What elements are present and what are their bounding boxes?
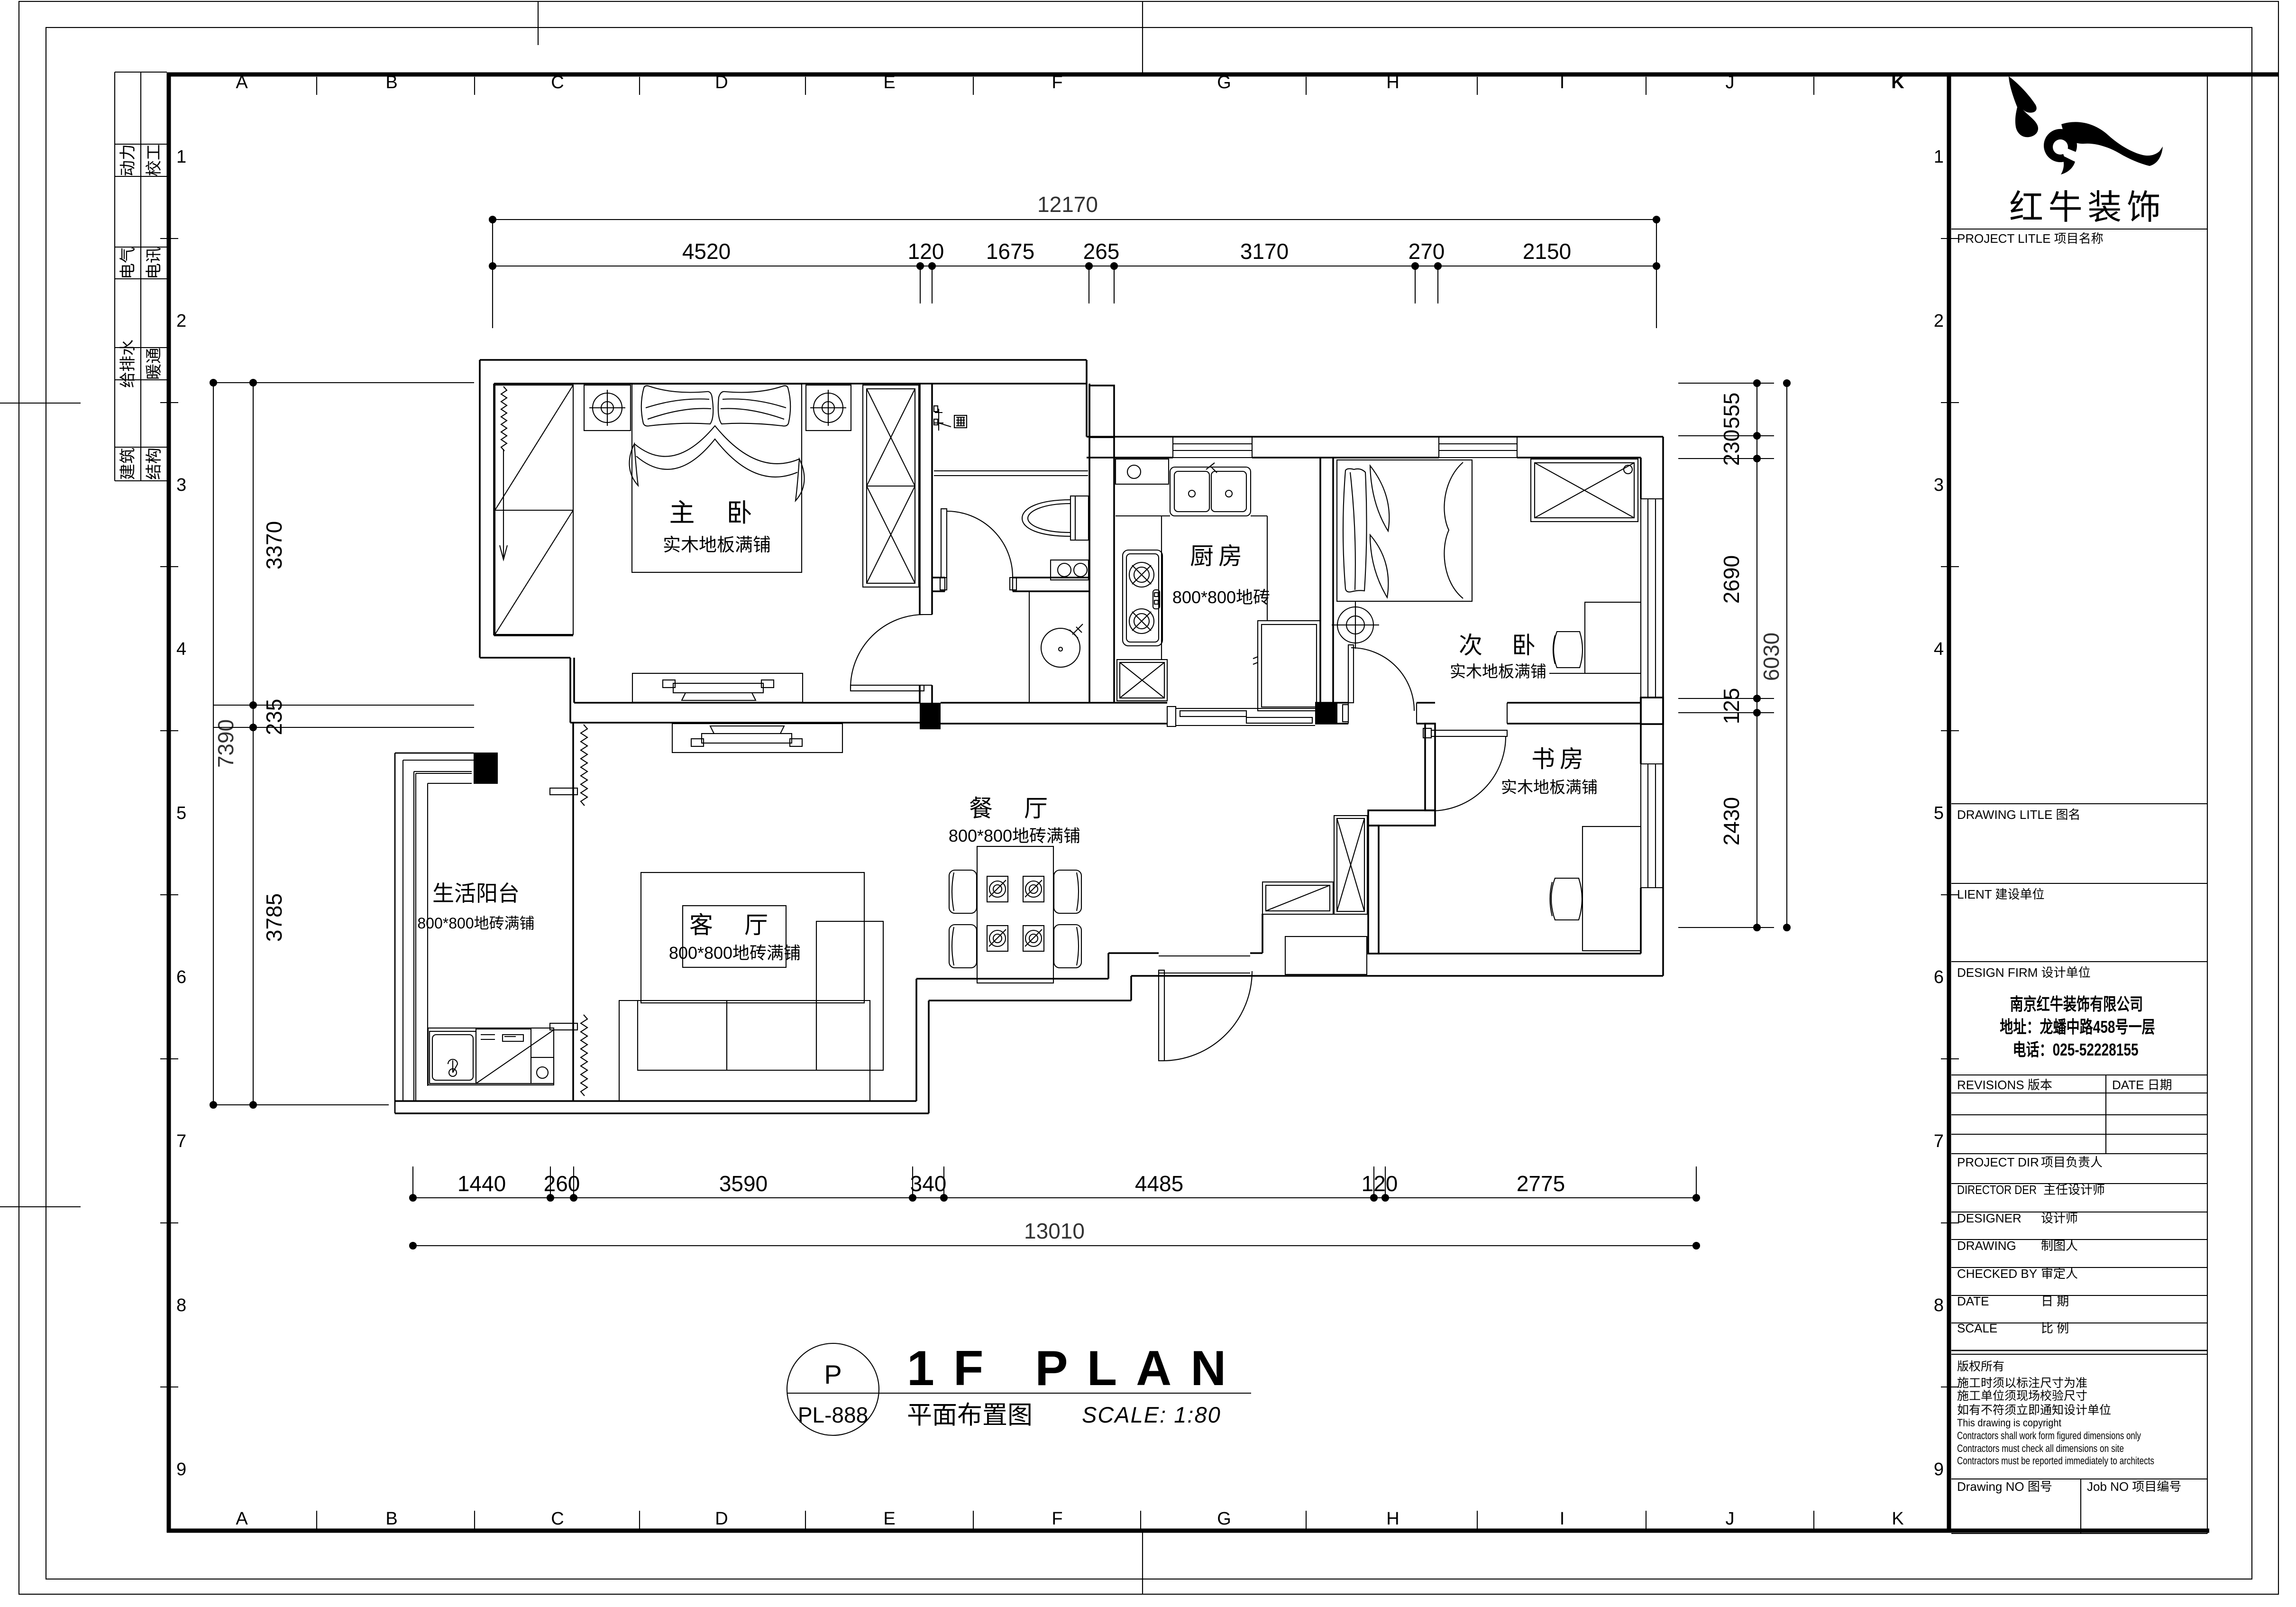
svg-text:C: C (551, 1509, 564, 1529)
svg-text:电讯: 电讯 (145, 247, 163, 279)
svg-text:F: F (1052, 1509, 1062, 1529)
svg-text:1675: 1675 (986, 239, 1034, 264)
svg-text:主 卧: 主 卧 (669, 499, 764, 527)
svg-text:P: P (824, 1359, 842, 1389)
svg-text:H: H (1386, 73, 1399, 92)
svg-text:J: J (1726, 1509, 1735, 1529)
svg-text:厨房: 厨房 (1190, 543, 1247, 569)
svg-text:2775: 2775 (1517, 1171, 1565, 1196)
svg-text:5: 5 (176, 803, 186, 823)
svg-text:7: 7 (176, 1131, 186, 1151)
svg-text:设计师: 设计师 (2041, 1211, 2078, 1225)
svg-text:2690: 2690 (1719, 555, 1744, 604)
svg-text:LIENT 建设单位: LIENT 建设单位 (1957, 887, 2044, 901)
svg-text:B: B (385, 1509, 397, 1529)
svg-text:9: 9 (176, 1460, 186, 1479)
svg-text:G: G (1217, 73, 1231, 92)
svg-text:电气: 电气 (119, 247, 137, 279)
svg-text:This drawing is copyright: This drawing is copyright (1957, 1417, 2061, 1429)
svg-text:如有不符须立即通知设计单位: 如有不符须立即通知设计单位 (1957, 1404, 2111, 1417)
svg-text:3: 3 (176, 475, 186, 495)
svg-text:7390: 7390 (213, 719, 238, 768)
svg-text:800*800地砖满铺: 800*800地砖满铺 (949, 826, 1080, 845)
svg-text:1: 1 (1934, 147, 1944, 167)
svg-text:6: 6 (176, 967, 186, 987)
svg-text:800*800地砖: 800*800地砖 (1172, 588, 1270, 607)
svg-text:7: 7 (1934, 1131, 1944, 1151)
svg-text:3170: 3170 (1240, 239, 1289, 264)
svg-text:4: 4 (176, 639, 186, 659)
svg-text:电话：025-52228155: 电话：025-52228155 (2012, 1040, 2138, 1059)
svg-text:审定人: 审定人 (2041, 1267, 2078, 1281)
svg-text:DATE: DATE (1957, 1294, 1989, 1308)
svg-text:PL-888: PL-888 (798, 1403, 868, 1427)
svg-text:I: I (1560, 1509, 1565, 1529)
svg-text:南京红牛装饰有限公司: 南京红牛装饰有限公司 (2010, 995, 2143, 1014)
svg-text:1440: 1440 (457, 1171, 506, 1196)
svg-text:1F PLAN: 1F PLAN (907, 1341, 1245, 1396)
svg-text:SCALE: 1:80: SCALE: 1:80 (1082, 1402, 1221, 1427)
svg-text:6: 6 (1934, 967, 1944, 987)
svg-text:235: 235 (262, 699, 286, 735)
svg-text:800*800地砖满铺: 800*800地砖满铺 (417, 915, 534, 932)
svg-text:5: 5 (1934, 803, 1944, 823)
svg-text:生活阳台: 生活阳台 (432, 881, 520, 906)
svg-text:260: 260 (544, 1171, 580, 1196)
svg-text:230: 230 (1719, 430, 1744, 466)
svg-text:主任设计师: 主任设计师 (2043, 1183, 2105, 1197)
svg-text:Drawing NO 图号: Drawing NO 图号 (1957, 1479, 2052, 1494)
svg-text:H: H (1386, 1509, 1399, 1529)
svg-text:SCALE: SCALE (1957, 1321, 1997, 1335)
svg-text:日 期: 日 期 (2041, 1294, 2069, 1308)
svg-text:CHECKED BY: CHECKED BY (1957, 1267, 2037, 1281)
svg-text:Contractors shall work form fi: Contractors shall work form figured dime… (1957, 1430, 2141, 1442)
svg-text:J: J (1726, 73, 1735, 92)
svg-text:DESIGNER: DESIGNER (1957, 1211, 2022, 1225)
svg-text:DRAWING: DRAWING (1957, 1239, 2016, 1253)
svg-text:实木地板满铺: 实木地板满铺 (1501, 779, 1598, 797)
svg-text:实木地板满铺: 实木地板满铺 (1450, 663, 1546, 681)
svg-text:B: B (385, 73, 397, 92)
svg-text:施工时须以标注尺寸为准: 施工时须以标注尺寸为准 (1957, 1377, 2087, 1390)
svg-text:Contractors must be reported i: Contractors must be reported immediately… (1957, 1455, 2154, 1467)
svg-text:实木地板满铺: 实木地板满铺 (663, 535, 771, 555)
svg-text:地址：龙蟠中路458号一层: 地址：龙蟠中路458号一层 (2000, 1018, 2155, 1037)
svg-text:餐 厅: 餐 厅 (969, 795, 1060, 822)
svg-text:E: E (883, 73, 895, 92)
svg-text:次 卧: 次 卧 (1459, 632, 1547, 659)
svg-text:Job NO 项目编号: Job NO 项目编号 (2087, 1479, 2181, 1494)
svg-text:3785: 3785 (262, 893, 286, 942)
svg-text:动力: 动力 (119, 144, 137, 176)
svg-text:125: 125 (1719, 688, 1744, 725)
svg-text:PROJECT LITLE 项目名称: PROJECT LITLE 项目名称 (1957, 231, 2104, 246)
svg-text:4520: 4520 (682, 239, 731, 264)
svg-text:REVISIONS 版本: REVISIONS 版本 (1957, 1078, 2052, 1092)
svg-text:A: A (236, 73, 248, 92)
svg-text:1: 1 (176, 147, 186, 167)
svg-text:13010: 13010 (1024, 1219, 1085, 1243)
svg-text:555: 555 (1719, 393, 1744, 429)
svg-text:F: F (1052, 73, 1062, 92)
svg-text:8: 8 (176, 1295, 186, 1315)
svg-text:2430: 2430 (1719, 797, 1744, 845)
svg-text:书房: 书房 (1531, 746, 1588, 772)
svg-text:版权所有: 版权所有 (1957, 1360, 2004, 1373)
svg-text:结构: 结构 (145, 448, 163, 480)
svg-text:3590: 3590 (719, 1171, 768, 1196)
svg-text:2150: 2150 (1523, 239, 1571, 264)
svg-text:DRAWING LITLE 图名: DRAWING LITLE 图名 (1957, 808, 2081, 822)
svg-text:比 例: 比 例 (2041, 1321, 2069, 1335)
svg-text:PROJECT DIR: PROJECT DIR (1957, 1155, 2039, 1169)
svg-text:项目负责人: 项目负责人 (2041, 1155, 2103, 1169)
svg-text:给排水: 给排水 (119, 340, 137, 388)
svg-text:制图人: 制图人 (2041, 1239, 2078, 1253)
svg-text:I: I (1560, 73, 1565, 92)
svg-text:4485: 4485 (1135, 1171, 1183, 1196)
svg-text:C: C (551, 73, 564, 92)
svg-text:施工单位须现场校验尺寸: 施工单位须现场校验尺寸 (1957, 1389, 2087, 1403)
svg-text:265: 265 (1083, 239, 1120, 264)
svg-text:6030: 6030 (1759, 633, 1784, 681)
svg-text:120: 120 (1362, 1171, 1398, 1196)
svg-text:K: K (1892, 1509, 1903, 1529)
svg-text:270: 270 (1409, 239, 1445, 264)
svg-text:DESIGN FIRM 设计单位: DESIGN FIRM 设计单位 (1957, 965, 2091, 980)
svg-text:平面布置图: 平面布置图 (907, 1401, 1033, 1429)
svg-text:120: 120 (908, 239, 944, 264)
svg-text:2: 2 (1934, 311, 1944, 331)
svg-text:G: G (1217, 1509, 1231, 1529)
svg-text:D: D (715, 73, 728, 92)
svg-text:客 厅: 客 厅 (689, 912, 780, 938)
svg-text:800*800地砖满铺: 800*800地砖满铺 (669, 943, 801, 963)
svg-text:2: 2 (176, 311, 186, 331)
svg-text:340: 340 (910, 1171, 947, 1196)
svg-text:9: 9 (1934, 1460, 1944, 1479)
svg-text:8: 8 (1934, 1295, 1944, 1315)
svg-text:D: D (715, 1509, 728, 1529)
svg-text:A: A (236, 1509, 248, 1529)
svg-text:E: E (883, 1509, 895, 1529)
svg-text:建筑: 建筑 (119, 448, 137, 480)
svg-text:12170: 12170 (1037, 192, 1098, 217)
svg-text:DIRECTOR DER: DIRECTOR DER (1957, 1183, 2037, 1197)
svg-text:4: 4 (1934, 639, 1944, 659)
svg-text:校工: 校工 (145, 144, 163, 176)
svg-text:DATE 日期: DATE 日期 (2112, 1078, 2172, 1092)
svg-text:3: 3 (1934, 475, 1944, 495)
svg-text:暖通: 暖通 (145, 348, 163, 380)
svg-text:Contractors must check all dim: Contractors must check all dimensions on… (1957, 1442, 2124, 1454)
svg-text:3370: 3370 (262, 521, 286, 569)
svg-text:K: K (1891, 73, 1904, 92)
